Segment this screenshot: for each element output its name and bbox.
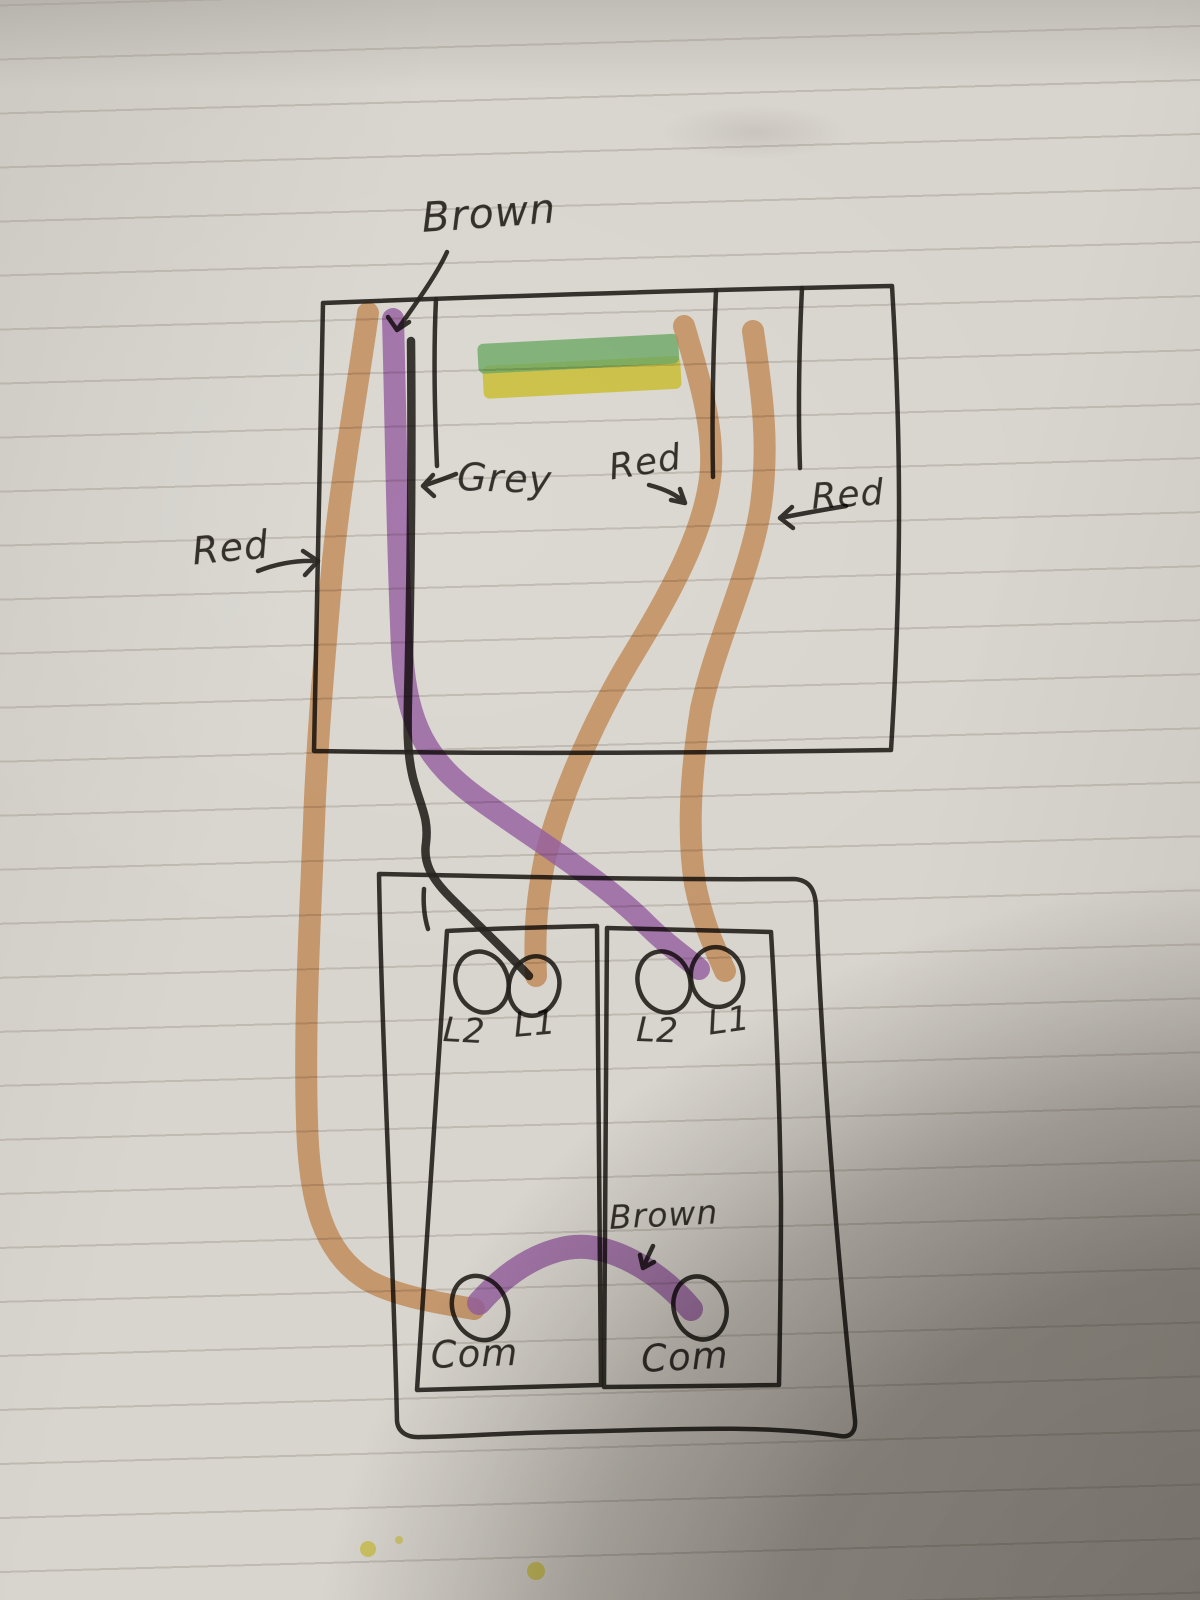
wiring-sketch xyxy=(0,0,1200,1600)
label-right-l1: L1 xyxy=(705,998,753,1044)
label-left-l1: L1 xyxy=(512,1002,558,1046)
label-grey: Grey xyxy=(456,455,552,502)
label-brown-top: Brown xyxy=(420,185,558,242)
marker-strokes xyxy=(306,313,765,1580)
label-right-l2: L2 xyxy=(636,1010,680,1051)
grey-arrow xyxy=(423,474,456,496)
label-right-com: Com xyxy=(640,1333,730,1381)
red-mid-arrow xyxy=(649,485,685,503)
label-red-right: Red xyxy=(810,472,886,518)
wire-black xyxy=(408,341,529,976)
yellow-speck xyxy=(360,1541,376,1557)
yellow-speck xyxy=(527,1562,545,1580)
yellow-speck xyxy=(395,1536,403,1544)
cable-entry-tick-3 xyxy=(799,288,802,468)
label-red-left: Red xyxy=(190,522,271,574)
label-brown-link: Brown xyxy=(608,1192,719,1237)
label-left-l2: L2 xyxy=(442,1010,487,1052)
cable-entry-tick-1 xyxy=(434,299,437,466)
notebook-photo: Brown Grey Red Red Red L2 L1 L2 L1 Brown… xyxy=(0,0,1200,1600)
stray-pen-mark xyxy=(424,889,428,929)
label-left-com: Com xyxy=(430,1331,519,1377)
brown-link-arrow xyxy=(640,1246,654,1268)
wire-purple-com-link xyxy=(479,1247,691,1309)
